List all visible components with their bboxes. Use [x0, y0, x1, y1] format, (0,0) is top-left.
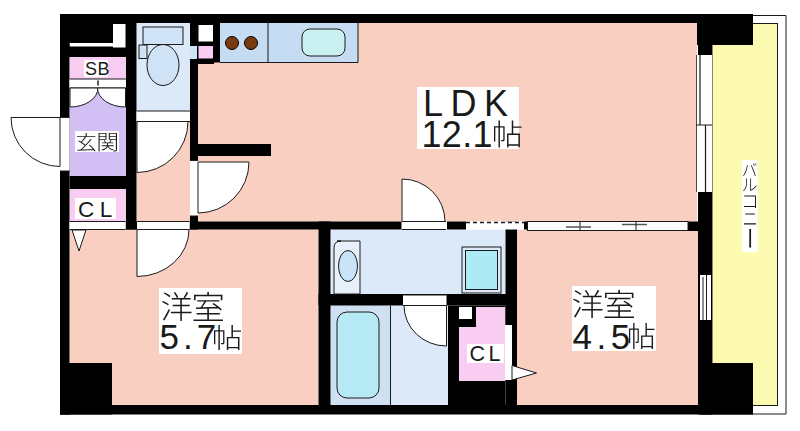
- svg-text:12.1: 12.1: [422, 114, 493, 155]
- svg-text:CL: CL: [78, 197, 118, 222]
- svg-text:4.5: 4.5: [573, 317, 635, 356]
- svg-text:5.7: 5.7: [160, 317, 221, 356]
- svg-text:SB: SB: [85, 59, 110, 79]
- svg-text:CL: CL: [470, 342, 504, 366]
